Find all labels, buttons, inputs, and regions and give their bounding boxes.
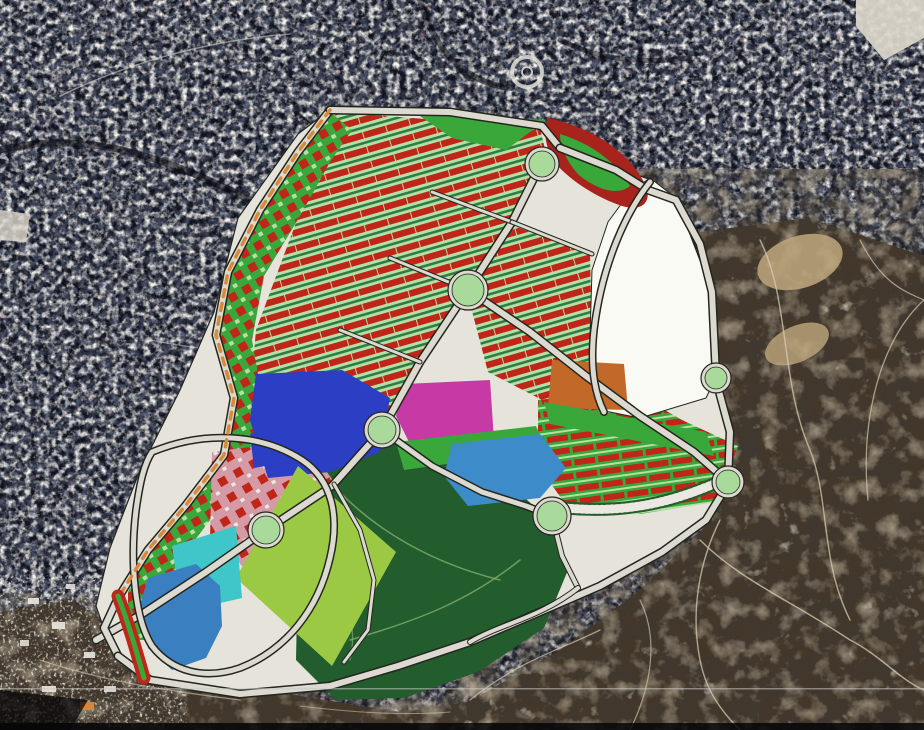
village-building: [84, 652, 95, 658]
masterplan-map: [0, 0, 924, 730]
map-layers: [0, 0, 924, 730]
village-building: [52, 622, 65, 629]
satellite-masterplan-viewport: [0, 0, 924, 730]
roundabout-east: [716, 470, 740, 494]
roundabout-northeast: [705, 367, 727, 389]
village-building: [20, 640, 29, 646]
village-building: [28, 598, 39, 604]
roundabout-top: [529, 151, 555, 177]
video-scanline: [0, 688, 924, 690]
roundabout-lake: [252, 516, 280, 544]
village-building: [66, 584, 75, 589]
roundabout-west: [368, 416, 396, 444]
roundabout-central: [452, 274, 484, 306]
white-block-leftedge: [0, 210, 30, 242]
roundabout-south: [537, 501, 567, 531]
bottom-black-bar: [0, 723, 924, 730]
